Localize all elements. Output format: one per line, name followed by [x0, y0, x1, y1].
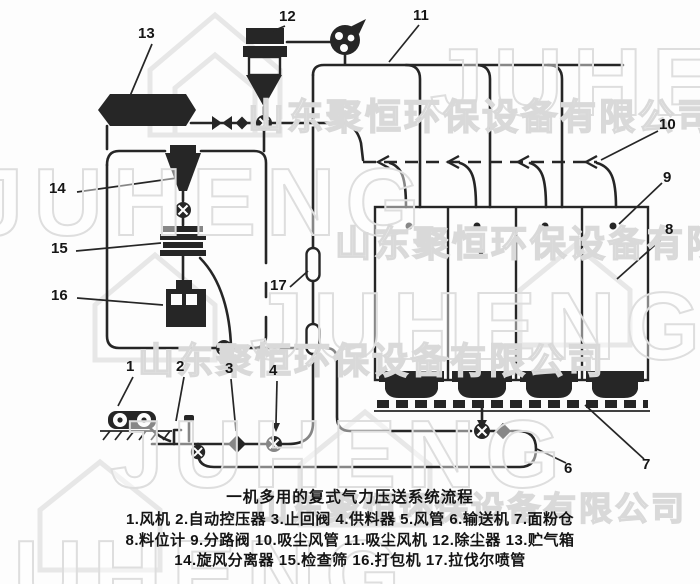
callout-11: 11 — [413, 8, 429, 23]
callout-1: 1 — [126, 359, 134, 374]
blowing-manifold — [313, 54, 623, 207]
branch-valve-dot — [610, 223, 617, 230]
callout-10: 10 — [659, 117, 676, 132]
branch-valve-dot — [406, 223, 413, 230]
callout-6: 6 — [564, 461, 572, 476]
callout-3: 3 — [225, 361, 233, 376]
callout-16: 16 — [51, 288, 68, 303]
butterfly-valve — [212, 116, 232, 130]
cyclone-separator — [165, 145, 201, 201]
callout-9: 9 — [663, 170, 671, 185]
pneumatic-conveying-diagram: JUHENG JUHENG JUHENG JUHENG JUHENG 山东聚恒环… — [0, 0, 700, 584]
feeder-valve — [266, 436, 282, 452]
branch-valve-dot — [474, 223, 481, 230]
callout-15: 15 — [51, 241, 68, 256]
baler — [166, 280, 206, 327]
legend-line-2: 8.料位计 9.分路阀 10.吸尘风管 11.吸尘风机 12.除尘器 13.贮气… — [0, 531, 700, 552]
callout-14: 14 — [49, 181, 66, 196]
circuit-bottom-valve — [216, 340, 232, 356]
callout-17: 17 — [270, 278, 287, 293]
flour-silos — [374, 207, 650, 411]
legend-line-1: 1.风机 2.自动控压器 3.止回阀 4.供料器 5.风管 6.输送机 7.面粉… — [0, 510, 700, 531]
caption-title: 一机多用的复式气力压送系统流程 — [0, 485, 700, 507]
callout-13: 13 — [138, 26, 155, 41]
dust-suction-fan — [330, 19, 366, 55]
conveyor-check-valve — [495, 423, 511, 439]
valve-diamond-top — [236, 117, 249, 130]
check-valve — [228, 435, 246, 453]
collector-rotary-valve — [256, 115, 272, 131]
branch-valve-dot — [542, 223, 549, 230]
bottom-transfer-pipe — [198, 348, 536, 467]
callout-4: 4 — [269, 363, 277, 378]
callout-7: 7 — [642, 457, 650, 472]
callout-12: 12 — [279, 9, 296, 24]
dust-collector — [243, 28, 287, 114]
check-sieve — [160, 218, 231, 347]
cyclone-rotary-valve — [175, 202, 191, 218]
legend-line-3: 14.旋风分离器 15.检查筛 16.打包机 17.拉伐尔喷管 — [0, 551, 700, 572]
caption-block: 一机多用的复式气力压送系统流程 1.风机 2.自动控压器 3.止回阀 4.供料器… — [0, 485, 700, 572]
return-line-valve — [191, 445, 205, 459]
air-tank — [98, 94, 256, 126]
callout-2: 2 — [176, 359, 184, 374]
callout-8: 8 — [665, 222, 673, 237]
silo-discharge-valve — [474, 423, 490, 439]
